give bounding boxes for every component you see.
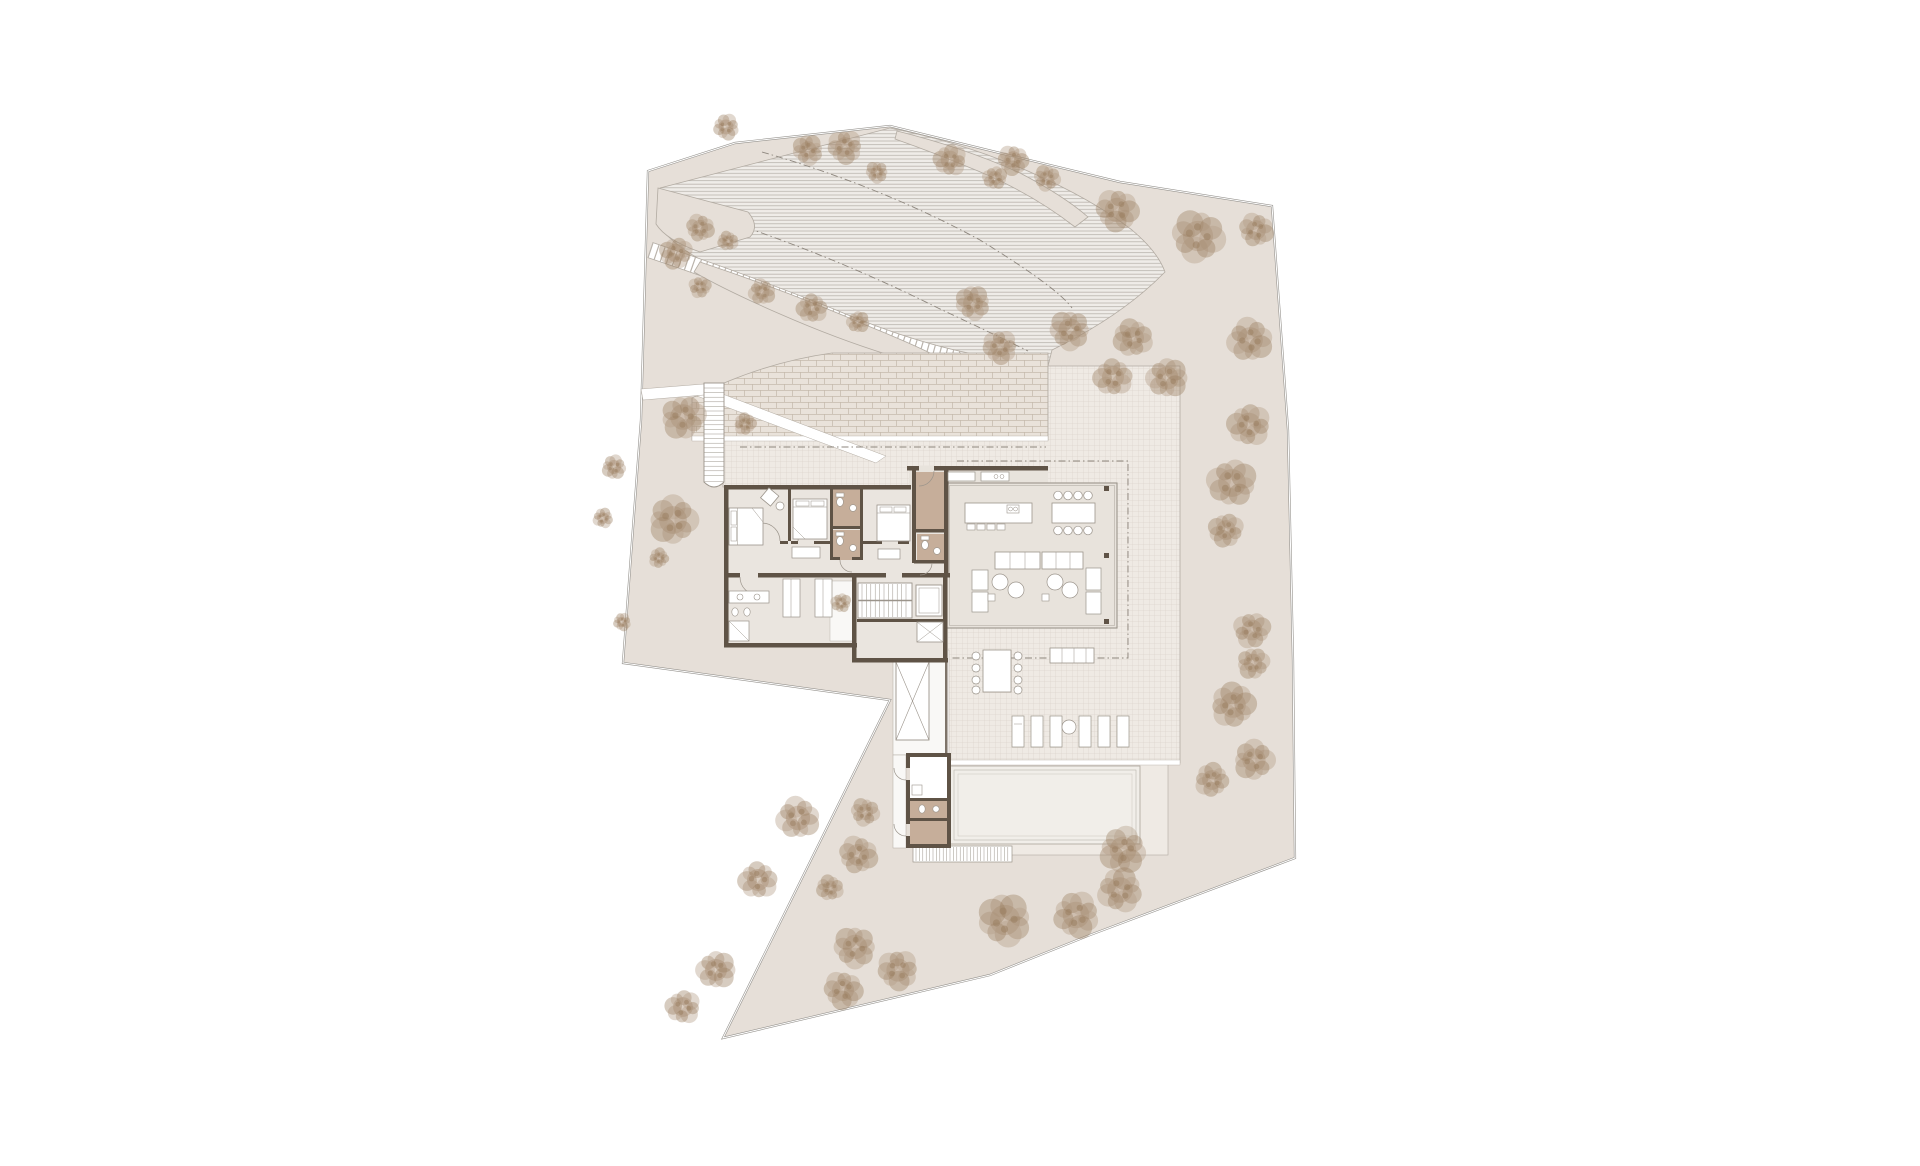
tree-foliage [665, 253, 682, 270]
tree-foliage [654, 557, 657, 560]
wall-garden [945, 662, 948, 763]
tree-foliage [1003, 347, 1008, 352]
tree-foliage [1111, 892, 1117, 898]
tree-foliage [1244, 415, 1250, 421]
tree-foliage [1205, 774, 1210, 779]
tree-foliage [672, 412, 678, 418]
tree-foliage [1122, 893, 1128, 899]
pillow [880, 507, 892, 512]
dining-chair [1054, 491, 1063, 500]
toilet [732, 608, 738, 616]
tree-foliage [682, 407, 688, 413]
wall [852, 577, 857, 662]
tree-foliage [1065, 909, 1071, 915]
wall [830, 489, 833, 560]
toilet-tank [836, 532, 844, 536]
tree-foliage [1120, 855, 1126, 861]
toilet-tank [921, 536, 929, 540]
sun-lounger [1117, 716, 1129, 747]
tree-foliage [1246, 657, 1250, 661]
tree-foliage [793, 138, 809, 154]
tree-foliage [756, 293, 760, 297]
wardrobe [783, 579, 800, 617]
tree-foliage [721, 123, 725, 127]
tree-foliage [1248, 230, 1253, 235]
tree-foliage [602, 513, 605, 516]
tree-foliage [952, 154, 956, 158]
tree-foliage [1218, 526, 1223, 531]
tree-foliage [1252, 633, 1257, 638]
tree-foliage [668, 251, 672, 255]
tree-foliage [993, 919, 1000, 926]
tree-foliage [1212, 772, 1217, 777]
wall [724, 485, 911, 490]
tree-foliage [1170, 379, 1176, 385]
toilet-tank [836, 493, 844, 497]
site-plan-page [0, 0, 1920, 1166]
tree-foliage [799, 809, 805, 815]
wall [906, 844, 951, 848]
tree-foliage [837, 146, 842, 151]
wall [788, 489, 791, 541]
tree-foliage [989, 176, 992, 179]
tree-foliage [1124, 884, 1130, 890]
tree-foliage [1244, 630, 1249, 635]
tree-foliage [1247, 429, 1253, 435]
tree-foliage [801, 820, 807, 826]
tree-foliage [605, 518, 608, 521]
tree-foliage [846, 857, 863, 874]
wall [780, 541, 788, 544]
bidet [744, 608, 750, 616]
tree-foliage [1234, 473, 1241, 480]
tree-foliage [1255, 657, 1259, 661]
tree-foliage [702, 288, 705, 291]
toilet [837, 498, 844, 507]
tree-foliage [696, 283, 699, 286]
wall [906, 753, 951, 757]
tree-foliage [867, 807, 871, 811]
tree-foliage [621, 624, 624, 627]
tree-foliage [839, 598, 842, 601]
tree-foliage [1244, 759, 1250, 765]
outdoor-chair [972, 652, 980, 660]
tree-foliage [829, 891, 833, 895]
wall [814, 541, 830, 544]
wall [857, 619, 943, 622]
tree-foliage [1194, 223, 1201, 230]
tree-foliage [826, 882, 830, 886]
chaise [1086, 568, 1101, 590]
tree-foliage [860, 807, 864, 811]
tree-foliage [1043, 172, 1047, 176]
tree-foliage [1197, 239, 1216, 258]
tree [775, 796, 819, 837]
stool [997, 524, 1005, 530]
dining-table [1052, 503, 1095, 523]
tree-foliage [1065, 321, 1071, 327]
tree-foliage [599, 515, 602, 518]
tree-foliage [717, 973, 722, 978]
tree-foliage [944, 154, 948, 158]
tree-foliage [613, 620, 621, 628]
sun-lounger [1031, 716, 1043, 747]
chaise [972, 592, 988, 612]
tree-foliage [859, 946, 865, 952]
tree-foliage [1186, 230, 1193, 237]
tree-foliage [1237, 704, 1243, 710]
tree-foliage [804, 153, 808, 157]
tree-foliage [1112, 846, 1118, 852]
tree-foliage [860, 321, 863, 324]
tree-foliage [1000, 339, 1005, 344]
court-terrace-walk [692, 436, 1048, 441]
sink [850, 545, 857, 552]
sun-lounger [1012, 716, 1024, 747]
tree-foliage [1077, 905, 1083, 911]
tree-foliage [848, 142, 853, 147]
side-table [1042, 594, 1049, 601]
wall [914, 560, 946, 564]
tree-foliage [967, 296, 972, 301]
kitchen-cabinet [981, 472, 1009, 481]
sun-lounger [1079, 716, 1091, 747]
tree-foliage [836, 602, 839, 605]
tree-foliage [609, 462, 612, 465]
tree-foliage [714, 953, 734, 973]
column [1104, 553, 1109, 558]
outdoor-chair [1014, 652, 1022, 660]
tree-foliage [684, 1000, 689, 1005]
tree-foliage [877, 163, 887, 173]
stool [776, 502, 784, 510]
wall [898, 541, 909, 544]
tree-foliage [1247, 752, 1253, 758]
sun-lounger [1050, 716, 1062, 747]
lounge-pouf [1047, 574, 1063, 590]
tree-foliage [944, 162, 948, 166]
tree-foliage [726, 236, 729, 239]
tree-foliage [718, 963, 723, 968]
tree-foliage [813, 302, 817, 306]
terrace-deck-walk [943, 760, 1180, 765]
tree-foliage [1222, 485, 1229, 492]
wall [912, 529, 944, 533]
tree-foliage [1206, 782, 1211, 787]
tree-foliage [696, 288, 699, 291]
side-table [988, 594, 995, 601]
tree-foliage [762, 877, 767, 882]
tree-foliage [612, 466, 624, 478]
tree-foliage [806, 143, 810, 147]
tree-foliage [1160, 381, 1166, 387]
tree-foliage [614, 469, 617, 472]
tree-foliage [840, 603, 849, 612]
wall [906, 780, 910, 824]
tree-foliage [740, 424, 743, 427]
tree-foliage [790, 820, 796, 826]
column [1104, 486, 1109, 491]
tree [737, 861, 777, 897]
tree-foliage [616, 463, 619, 466]
tree-foliage [1239, 337, 1245, 343]
tree-foliage [1247, 329, 1253, 335]
tree-foliage [708, 971, 713, 976]
tree [664, 990, 699, 1023]
tree-foliage [717, 238, 727, 248]
tree-foliage [843, 602, 846, 605]
tree-foliage [1258, 224, 1263, 229]
tree-foliage [1128, 845, 1134, 851]
tree-foliage [1248, 344, 1254, 350]
wall [791, 541, 798, 544]
tree-foliage [700, 282, 703, 285]
tree-foliage [858, 324, 861, 327]
tree-foliage [862, 855, 867, 860]
tree [713, 114, 738, 141]
pool-side-table [1062, 720, 1076, 734]
tree-foliage [805, 304, 809, 308]
tree-foliage [695, 230, 699, 234]
tree-foliage [853, 321, 856, 324]
tree-foliage [749, 876, 754, 881]
wall [943, 577, 948, 662]
pillow [811, 501, 824, 506]
tree-foliage [900, 962, 906, 968]
tree-foliage [856, 317, 859, 320]
chaise [972, 570, 988, 590]
wall [908, 818, 949, 821]
tree-foliage [1230, 528, 1235, 533]
lounge-pouf [1008, 582, 1024, 598]
tree-foliage [679, 1010, 684, 1015]
tree-foliage [845, 150, 850, 155]
tree-foliage [873, 168, 876, 171]
tree-foliage [1061, 331, 1067, 337]
outdoor-chair [1014, 686, 1022, 694]
stool [967, 524, 975, 530]
elevator [916, 585, 942, 616]
wall [912, 468, 916, 563]
tree-foliage [801, 146, 805, 150]
tree-foliage [890, 963, 896, 969]
tree-foliage [759, 286, 763, 290]
tree-foliage [1235, 486, 1242, 493]
tree-foliage [846, 984, 851, 989]
pillow [731, 527, 737, 541]
pillow [731, 511, 737, 525]
tree-foliage [991, 180, 994, 183]
tree-foliage [815, 307, 819, 311]
tree-foliage [675, 510, 682, 517]
tree-foliage [992, 343, 997, 348]
tree-foliage [1068, 334, 1074, 340]
tree-foliage [1116, 371, 1121, 376]
tree-foliage [1108, 204, 1114, 210]
tree-foliage [679, 422, 685, 428]
wall [833, 526, 860, 529]
wall [758, 573, 886, 578]
tree-foliage [850, 951, 856, 957]
tree-foliage [997, 351, 1002, 356]
outdoor-chair [972, 686, 980, 694]
tree-foliage [730, 239, 733, 242]
tree-foliage [727, 129, 731, 133]
tree-foliage [1137, 338, 1142, 343]
tree-foliage [1220, 682, 1243, 705]
tree-foliage [1127, 341, 1132, 346]
tree-foliage [825, 889, 829, 893]
garden-steps [913, 846, 1012, 862]
tree-foliage [1224, 472, 1231, 479]
pillow [894, 507, 906, 512]
dining-chair [1084, 491, 1093, 500]
pool-bath-floor [910, 821, 947, 844]
tree-foliage [1157, 374, 1163, 380]
tree-foliage [661, 557, 664, 560]
tree-foliage [1108, 212, 1114, 218]
door-gap [919, 466, 934, 472]
tree-foliage [879, 168, 882, 171]
outdoor-chair [1014, 676, 1022, 684]
tree-foliage [1074, 326, 1080, 332]
tree-foliage [841, 605, 844, 608]
tree-foliage [1215, 781, 1220, 786]
tree-foliage [1042, 179, 1046, 183]
tree-foliage [899, 973, 905, 979]
tree [602, 454, 626, 478]
tree-foliage [1049, 175, 1053, 179]
tree-foliage [873, 174, 876, 177]
tree-foliage [754, 871, 759, 876]
plan-layers [593, 114, 1295, 1038]
tree [593, 508, 613, 529]
tree-foliage [1001, 926, 1008, 933]
wall [906, 753, 910, 768]
tree-foliage [618, 621, 621, 624]
wall [724, 573, 740, 578]
tree-foliage [1239, 422, 1245, 428]
tree-foliage [1214, 530, 1232, 548]
shower [912, 785, 922, 795]
tree-foliage [849, 852, 854, 857]
tree-foliage [679, 249, 683, 253]
tree-foliage [600, 520, 603, 523]
tree-foliage [1079, 917, 1085, 923]
tree-foliage [788, 812, 794, 818]
tree-foliage [856, 859, 861, 864]
tree-foliage [1222, 702, 1228, 708]
tree-foliage [1253, 421, 1259, 427]
tree-foliage [1016, 160, 1020, 164]
tree-foliage [657, 553, 660, 556]
tree-foliage [1257, 754, 1263, 760]
tree-foliage [997, 178, 1000, 181]
tree-foliage [723, 239, 726, 242]
tree-foliage [853, 937, 859, 943]
sofa [1042, 552, 1083, 569]
tree-foliage [846, 941, 852, 947]
sofa [995, 552, 1040, 569]
toilet [837, 537, 844, 546]
tree-foliage [1006, 158, 1010, 162]
tree-foliage [1204, 233, 1211, 240]
kitchen-cabinet [948, 472, 975, 481]
stool [987, 524, 995, 530]
tree-foliage [879, 172, 882, 175]
dresser [878, 549, 900, 559]
toilet [922, 541, 929, 550]
tree-foliage [1119, 212, 1125, 218]
wall [852, 557, 860, 560]
outdoor-sofa [1050, 648, 1094, 663]
tree-foliage [843, 994, 848, 999]
outdoor-chair [972, 664, 980, 672]
tree-foliage [1125, 331, 1130, 336]
tree-foliage [1256, 627, 1261, 632]
wall [852, 658, 948, 663]
lounge-pouf [1062, 582, 1078, 598]
wall [724, 643, 857, 648]
tree-foliage [1222, 533, 1227, 538]
wall [833, 557, 840, 560]
wall [908, 798, 949, 801]
tree-foliage [842, 139, 847, 144]
tree-foliage [1106, 369, 1111, 374]
tree-foliage [726, 243, 729, 246]
tree-foliage [1012, 153, 1016, 157]
tree-foliage [1113, 381, 1118, 386]
tree-foliage [746, 426, 749, 429]
wall [724, 485, 729, 647]
tree-foliage [976, 298, 981, 303]
floor-plan-drawing [0, 0, 1920, 1166]
tree-foliage [966, 305, 971, 310]
tree-foliage [857, 846, 862, 851]
dining-chair [1074, 526, 1083, 535]
chaise [1086, 592, 1101, 614]
tree-foliage [889, 971, 895, 977]
tree-foliage [727, 122, 731, 126]
dining-chair [1084, 526, 1093, 535]
tree-foliage [1226, 522, 1231, 527]
tree-foliage [763, 287, 767, 291]
tree-foliage [1135, 331, 1140, 336]
tree-foliage [702, 229, 706, 233]
tree-foliage [860, 814, 864, 818]
stool [977, 524, 985, 530]
tree-foliage [1011, 163, 1015, 167]
tree-foliage [1254, 665, 1258, 669]
tree-foliage [657, 560, 660, 563]
tree-foliage [1011, 916, 1018, 923]
tree-foliage [840, 981, 845, 986]
tree-foliage [811, 149, 815, 153]
tree-foliage [1254, 764, 1260, 770]
tree-foliage [1231, 694, 1237, 700]
tree-foliage [663, 401, 682, 420]
sink [850, 505, 857, 512]
dining-chair [1074, 491, 1083, 500]
outdoor-chair [1014, 664, 1022, 672]
tree-foliage [1256, 233, 1261, 238]
tree-foliage [834, 989, 839, 994]
tree-foliage [1113, 880, 1119, 886]
tree-foliage [1248, 621, 1253, 626]
dresser [792, 547, 820, 558]
vanity-counter [729, 591, 769, 603]
sun-lounger [1098, 716, 1110, 747]
